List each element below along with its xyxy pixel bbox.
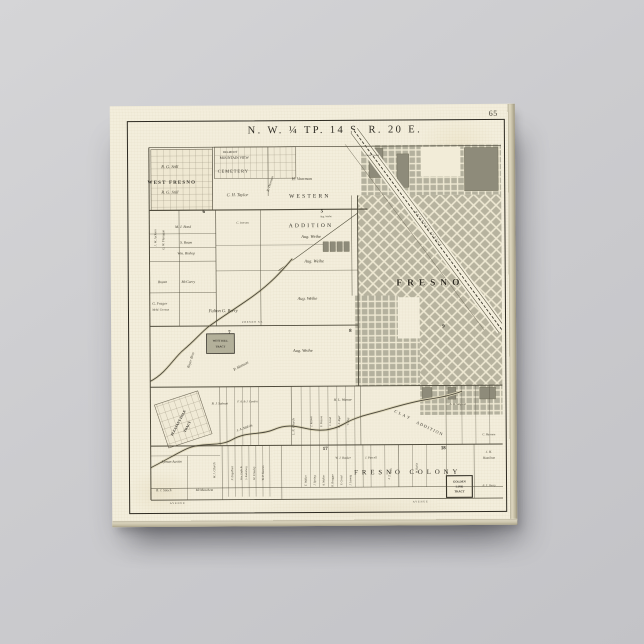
map-label: Royer Bros xyxy=(186,351,195,369)
map-label: V. Clay xyxy=(346,417,350,426)
map-label: A. H. Simpson xyxy=(449,402,467,406)
map-label: B. J. Salmon xyxy=(212,401,229,405)
map-survey-line xyxy=(216,245,323,246)
map-label: J. Spring xyxy=(312,475,316,486)
map-label: Fulton G. Berry xyxy=(208,308,239,313)
map-region-dark xyxy=(480,387,496,399)
map-label: B. J. Stioch xyxy=(156,488,172,492)
map-region-paper xyxy=(421,147,461,177)
map-label: C. H. Taylor xyxy=(227,192,249,197)
map-label: R. G. Still xyxy=(160,164,179,169)
map-label: Aug. Weihe xyxy=(297,296,318,301)
map-label: CEMETERY xyxy=(218,169,249,174)
map-label: A. Walker xyxy=(321,474,325,487)
map-label: WEST HILL xyxy=(213,340,229,343)
map-survey-line xyxy=(149,148,151,501)
map-label: McGarry xyxy=(181,280,196,284)
map-label: TRACT xyxy=(216,345,226,348)
map-label: WEST FRESNO xyxy=(148,181,197,186)
map-survey-line xyxy=(216,270,358,271)
map-region-dark xyxy=(464,147,498,190)
map-label: R. G. Still xyxy=(160,190,179,195)
map-label: B. F. Alger xyxy=(337,414,341,427)
map-label: Aug. Weihe xyxy=(319,215,332,218)
map-label: J. H. xyxy=(486,450,492,454)
map-region-dark xyxy=(323,242,329,252)
map-region-boxdark xyxy=(207,334,235,354)
map-label: W. P. Kearns xyxy=(261,465,265,481)
map-region-dark xyxy=(422,387,432,399)
map-label: H. L. Warner xyxy=(333,398,353,402)
map-label: WESTERN xyxy=(289,194,330,200)
map-label: F. Engelbert xyxy=(230,466,234,482)
map-label: MOUNTAIN VIEW xyxy=(220,156,250,160)
map-label: 18 xyxy=(441,446,447,451)
map-label: CLAY xyxy=(394,409,413,422)
map-region-dark xyxy=(344,242,350,252)
map-label: G. Frager xyxy=(152,302,167,306)
map-body: WEST FRESNOR. G. StillR. G. StillBELMONT… xyxy=(131,122,503,510)
map-label: F. Creed xyxy=(339,475,343,486)
map-label: Royan xyxy=(157,280,168,284)
map-label: H. Voorman xyxy=(291,176,312,181)
map-label: Aug. Weihe xyxy=(303,258,324,263)
map-label: L. N. Church xyxy=(291,418,295,436)
map-label: J. Keown xyxy=(309,416,313,427)
map-label: S. Beam xyxy=(180,241,192,245)
map-label: Lyman Austin xyxy=(161,460,182,464)
map-label: J. Lannig xyxy=(348,474,352,485)
map-label: McMeachem xyxy=(195,488,214,492)
canvas-print: 65 N. W. ¼ TP. 14 S. R. 20 E. xyxy=(110,104,518,527)
map-label: Aug. Weihe xyxy=(300,234,321,239)
map-label: AVENUE xyxy=(170,502,186,505)
map-label: Grand Central xyxy=(365,154,379,157)
map-label: H. Crowley xyxy=(252,466,256,481)
map-label: Aug. Weihe xyxy=(292,348,313,353)
map-path-river xyxy=(150,259,294,382)
map-survey-line xyxy=(351,195,352,295)
map-label: LINK xyxy=(456,484,464,488)
map-region-dark xyxy=(330,242,336,252)
map-label: GOLDEN xyxy=(453,480,467,484)
map-label: J. Lovel xyxy=(328,417,332,426)
map-survey-line xyxy=(150,325,358,326)
map-label: Hamilton xyxy=(482,456,496,460)
map-label: 8 xyxy=(349,329,352,334)
map-label: ADDITION xyxy=(289,223,334,229)
map-label: B. S. Derry xyxy=(482,483,496,487)
map-label: C. Iversen xyxy=(236,221,249,225)
map-frame: N. W. ¼ TP. 14 S. R. 20 E. xyxy=(127,119,507,514)
map-label: P. Monson xyxy=(231,360,249,373)
map-label: R. Bragger xyxy=(330,473,334,488)
map-label: J. W. Jackson xyxy=(153,229,157,246)
map-label: Wm. Engle & xyxy=(240,466,243,480)
map-label: TRACT xyxy=(454,489,464,493)
page-number: 65 xyxy=(489,109,498,118)
map-label: BELMONT xyxy=(223,150,238,154)
map-label: J. Purcell xyxy=(365,456,377,460)
map-label: W. J. Booker xyxy=(335,456,351,460)
canvas-wrapped-edge-bottom xyxy=(112,519,517,527)
map-label: M. J. Bond xyxy=(174,225,191,229)
canvas-wrapped-edge-right xyxy=(508,104,518,525)
map-region-lots xyxy=(154,391,212,448)
map-label: 17 xyxy=(323,447,329,452)
wall-background: 65 N. W. ¼ TP. 14 S. R. 20 E. xyxy=(0,0,644,644)
map-region-axis xyxy=(355,295,398,338)
map-label: G. W. Flanagan xyxy=(161,229,165,249)
map-label: 5 xyxy=(321,209,324,214)
map-label: 6 xyxy=(203,210,206,215)
map-label: F. Pascoe xyxy=(319,415,323,428)
map-label: Wm. Bishop xyxy=(177,251,195,255)
map-label: W. J. Church xyxy=(212,462,216,479)
map-label: F. A. & J. Condra xyxy=(236,399,258,403)
map-label: S. Rodenberg xyxy=(245,466,248,480)
map-survey-line xyxy=(260,210,261,326)
map-label: McM. Corman xyxy=(151,308,170,312)
map-label: T. Walker xyxy=(304,474,308,486)
map-survey-line xyxy=(151,498,503,500)
map-region-dark xyxy=(337,242,343,252)
map-drawing: WEST FRESNOR. G. StillR. G. StillBELMONT… xyxy=(131,122,503,510)
map-label: W. Burke xyxy=(415,462,419,473)
map-label: C. Harmon xyxy=(482,432,496,436)
map-label: AVENUE xyxy=(413,500,429,503)
map-label: FRESNO ST. xyxy=(242,321,264,324)
map-label: FRESNO COLONY xyxy=(354,469,461,477)
map-label: FRESNO xyxy=(396,278,464,288)
map-label: ADDITION xyxy=(415,420,444,437)
map-region-axis xyxy=(355,338,420,386)
